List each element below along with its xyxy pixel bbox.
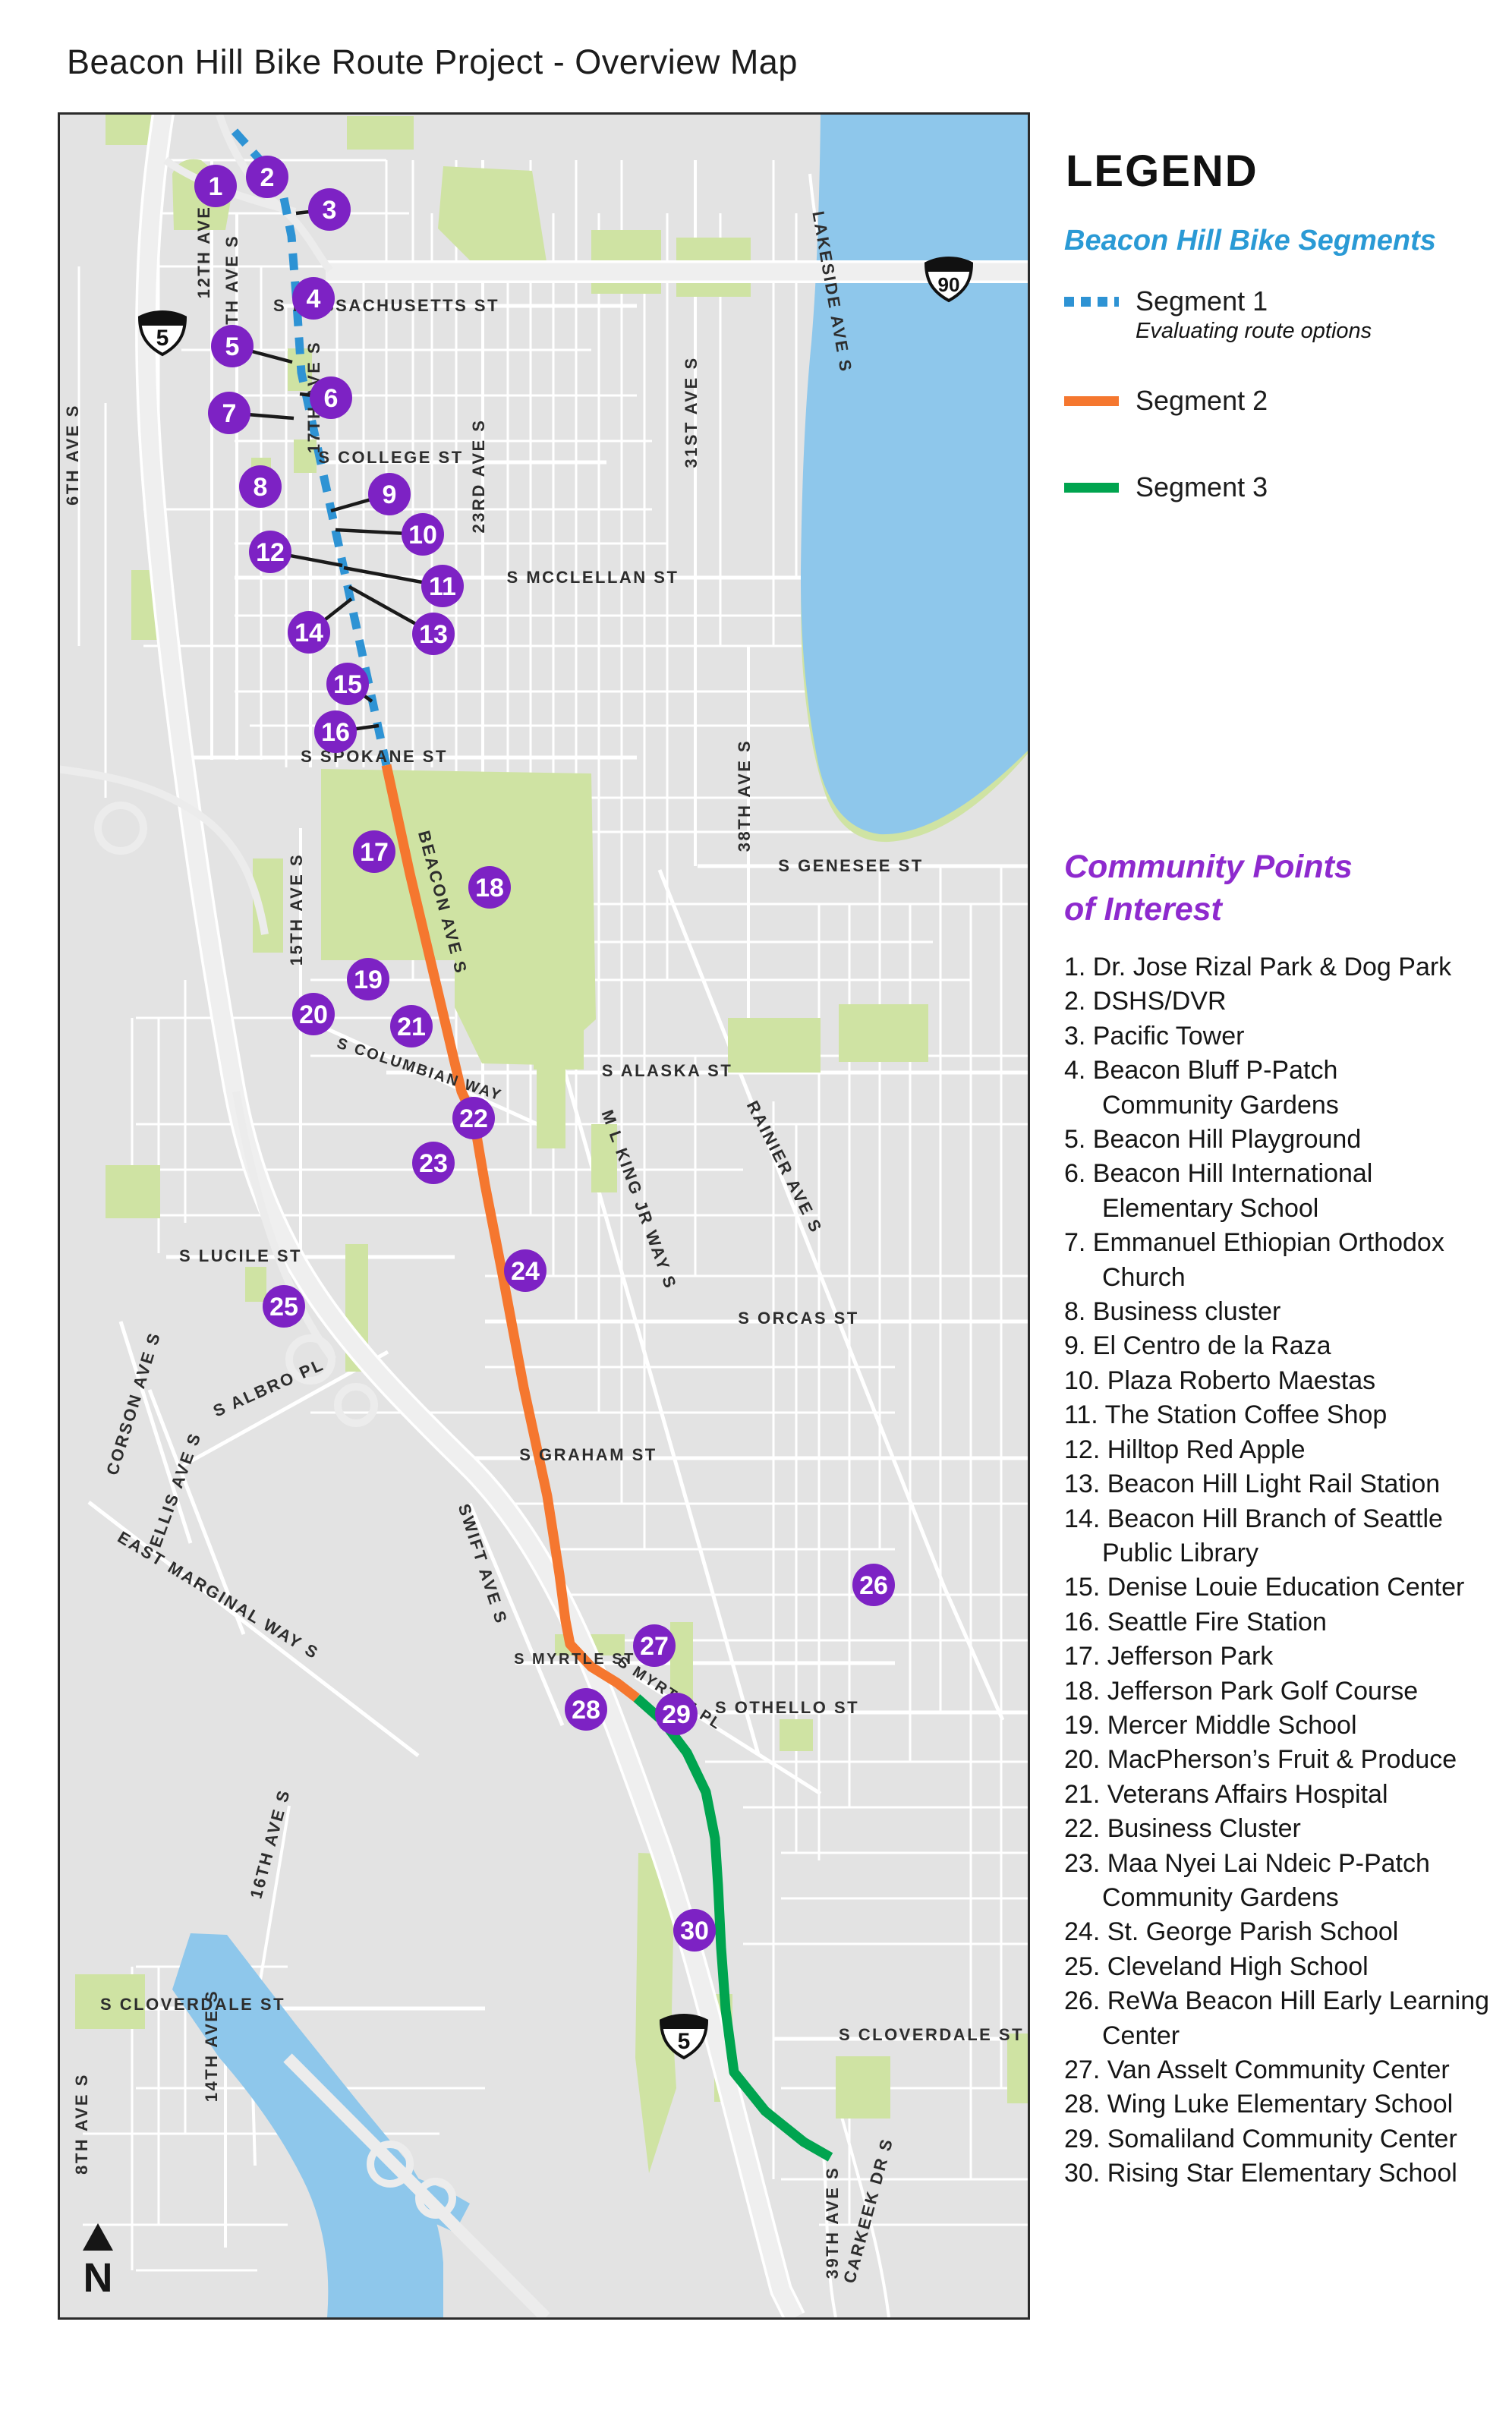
poi-heading-line2: of Interest xyxy=(1064,891,1222,928)
poi-marker-number: 22 xyxy=(459,1104,488,1133)
poi-item-9: 9. El Centro de la Raza xyxy=(1064,1329,1508,1363)
map-canvas: 5905 S MASSACHUSETTS STS COLLEGE STS MCC… xyxy=(60,115,1028,2317)
legend-row-segment-1: Segment 1 xyxy=(1064,284,1268,319)
poi-item-3: 3. Pacific Tower xyxy=(1064,1019,1508,1054)
poi-marker-number: 8 xyxy=(254,473,268,502)
poi-item-10: 10. Plaza Roberto Maestas xyxy=(1064,1364,1508,1398)
poi-marker-number: 21 xyxy=(397,1013,426,1041)
street-label: 15TH AVE S xyxy=(287,853,306,966)
shield-number: 90 xyxy=(938,273,960,296)
poi-marker-22: 22 xyxy=(452,1097,495,1139)
poi-marker-29: 29 xyxy=(655,1693,698,1735)
poi-marker-number: 7 xyxy=(222,399,237,428)
poi-marker-26: 26 xyxy=(852,1564,895,1606)
poi-marker-19: 19 xyxy=(347,958,389,1000)
poi-marker-8: 8 xyxy=(239,465,282,508)
poi-item-2: 2. DSHS/DVR xyxy=(1064,984,1508,1019)
poi-marker-number: 2 xyxy=(260,163,275,192)
street-label: 6TH AVE S xyxy=(63,404,82,506)
poi-item-25: 25. Cleveland High School xyxy=(1064,1950,1508,1984)
poi-item-24: 24. St. George Parish School xyxy=(1064,1915,1508,1949)
street-label: S CLOVERDALE ST xyxy=(100,1995,285,2014)
poi-marker-20: 20 xyxy=(292,993,335,1035)
shield-number: 5 xyxy=(678,2029,691,2054)
poi-marker-number: 29 xyxy=(662,1700,691,1729)
legend-panel: LEGEND Beacon Hill Bike Segments Segment… xyxy=(1058,0,1512,2432)
poi-marker-4: 4 xyxy=(292,277,335,320)
street-label: S GRAHAM ST xyxy=(519,1445,657,1464)
legend-row-segment-2: Segment 2 xyxy=(1064,383,1268,418)
overview-map: 5905 S MASSACHUSETTS STS COLLEGE STS MCC… xyxy=(58,112,1030,2320)
poi-item-15: 15. Denise Louie Education Center xyxy=(1064,1570,1508,1605)
legend-title: LEGEND xyxy=(1066,146,1258,197)
poi-marker-number: 4 xyxy=(307,285,321,313)
poi-marker-number: 25 xyxy=(269,1293,298,1322)
poi-item-23: 23. Maa Nyei Lai Ndeic P-Patch Community… xyxy=(1064,1847,1508,1916)
poi-marker-number: 30 xyxy=(680,1917,709,1945)
north-arrow-label: N xyxy=(83,2255,113,2301)
street-label: 39TH AVE S xyxy=(823,2166,842,2279)
segment-3-swatch xyxy=(1064,483,1119,493)
poi-marker-number: 19 xyxy=(354,966,383,994)
poi-item-12: 12. Hilltop Red Apple xyxy=(1064,1433,1508,1467)
poi-item-16: 16. Seattle Fire Station xyxy=(1064,1605,1508,1640)
segment-1-note: Evaluating route options xyxy=(1136,319,1372,344)
poi-marker-number: 11 xyxy=(429,572,456,601)
poi-list: 1. Dr. Jose Rizal Park & Dog Park2. DSHS… xyxy=(1064,950,1508,2191)
street-label: S CLOVERDALE ST xyxy=(839,2025,1024,2044)
poi-marker-23: 23 xyxy=(412,1142,455,1184)
poi-marker-number: 10 xyxy=(408,521,437,550)
poi-marker-25: 25 xyxy=(263,1285,305,1328)
poi-marker-28: 28 xyxy=(565,1688,607,1731)
street-label: 38TH AVE S xyxy=(735,739,754,852)
poi-item-11: 11. The Station Coffee Shop xyxy=(1064,1398,1508,1432)
street-label: S OTHELLO ST xyxy=(715,1698,859,1717)
poi-marker-27: 27 xyxy=(633,1624,676,1667)
poi-item-5: 5. Beacon Hill Playground xyxy=(1064,1123,1508,1157)
street-label: S COLLEGE ST xyxy=(318,448,463,467)
street-label: 8TH AVE S xyxy=(72,2073,91,2175)
street-label: 14TH AVE S xyxy=(202,1989,221,2102)
poi-marker-number: 12 xyxy=(256,538,285,567)
poi-marker-number: 17 xyxy=(360,838,389,867)
poi-item-28: 28. Wing Luke Elementary School xyxy=(1064,2087,1508,2122)
poi-marker-30: 30 xyxy=(673,1909,716,1952)
poi-marker-number: 28 xyxy=(572,1696,600,1725)
poi-item-17: 17. Jefferson Park xyxy=(1064,1640,1508,1674)
segment-2-label: Segment 2 xyxy=(1136,385,1268,417)
page-title: Beacon Hill Bike Route Project - Overvie… xyxy=(67,43,798,82)
poi-item-21: 21. Veterans Affairs Hospital xyxy=(1064,1778,1508,1812)
poi-marker-number: 15 xyxy=(333,670,362,699)
shield-number: 5 xyxy=(156,326,169,351)
poi-item-1: 1. Dr. Jose Rizal Park & Dog Park xyxy=(1064,950,1508,984)
segments-heading: Beacon Hill Bike Segments xyxy=(1064,225,1436,257)
poi-marker-number: 3 xyxy=(323,196,337,225)
poi-item-13: 13. Beacon Hill Light Rail Station xyxy=(1064,1467,1508,1501)
street-label: 31ST AVE S xyxy=(682,356,701,468)
poi-marker-17: 17 xyxy=(353,830,395,873)
poi-marker-1: 1 xyxy=(194,165,237,207)
poi-item-27: 27. Van Asselt Community Center xyxy=(1064,2053,1508,2087)
street-label: S GENESEE ST xyxy=(778,856,923,875)
poi-item-18: 18. Jefferson Park Golf Course xyxy=(1064,1674,1508,1709)
street-label: S MCCLELLAN ST xyxy=(507,568,679,587)
poi-marker-number: 24 xyxy=(511,1257,540,1286)
poi-marker-2: 2 xyxy=(246,156,288,198)
poi-marker-number: 14 xyxy=(295,619,323,647)
poi-marker-number: 18 xyxy=(475,874,504,903)
segment-1-label: Segment 1 xyxy=(1136,285,1268,317)
street-label: S ORCAS ST xyxy=(738,1309,858,1328)
poi-marker-number: 1 xyxy=(209,172,223,201)
poi-item-14: 14. Beacon Hill Branch of Seattle Public… xyxy=(1064,1502,1508,1571)
poi-item-26: 26. ReWa Beacon Hill Early Learning Cent… xyxy=(1064,1984,1508,2053)
poi-marker-21: 21 xyxy=(390,1005,433,1047)
poi-item-29: 29. Somaliland Community Center xyxy=(1064,2122,1508,2156)
poi-marker-number: 13 xyxy=(419,620,448,649)
legend-row-segment-3: Segment 3 xyxy=(1064,470,1268,505)
lake-washington xyxy=(801,115,1028,834)
poi-marker-24: 24 xyxy=(504,1249,547,1292)
poi-item-19: 19. Mercer Middle School xyxy=(1064,1709,1508,1743)
poi-item-22: 22. Business Cluster xyxy=(1064,1812,1508,1846)
poi-item-6: 6. Beacon Hill International Elementary … xyxy=(1064,1157,1508,1226)
poi-marker-number: 6 xyxy=(324,384,339,413)
street-label: S ALASKA ST xyxy=(602,1061,733,1080)
segment-1-swatch xyxy=(1064,297,1119,307)
poi-item-20: 20. MacPherson’s Fruit & Produce xyxy=(1064,1743,1508,1777)
poi-marker-18: 18 xyxy=(468,866,511,909)
segment-3-label: Segment 3 xyxy=(1136,471,1268,503)
poi-item-30: 30. Rising Star Elementary School xyxy=(1064,2156,1508,2191)
poi-marker-number: 23 xyxy=(419,1149,448,1178)
segment-2-swatch xyxy=(1064,396,1119,406)
poi-item-8: 8. Business cluster xyxy=(1064,1295,1508,1329)
page: { "title": "Beacon Hill Bike Route Proje… xyxy=(0,0,1512,2432)
poi-marker-number: 27 xyxy=(640,1632,669,1661)
poi-heading-line1: Community Points xyxy=(1064,849,1353,886)
poi-item-7: 7. Emmanuel Ethiopian Orthodox Church xyxy=(1064,1226,1508,1295)
poi-marker-number: 5 xyxy=(225,332,240,361)
poi-marker-number: 9 xyxy=(383,480,397,509)
poi-marker-number: 26 xyxy=(859,1571,888,1600)
poi-marker-number: 20 xyxy=(299,1000,328,1029)
poi-item-4: 4. Beacon Bluff P-Patch Community Garden… xyxy=(1064,1054,1508,1123)
street-label: S LUCILE ST xyxy=(179,1246,302,1265)
poi-marker-number: 16 xyxy=(321,718,350,747)
street-label: 23RD AVE S xyxy=(469,419,488,534)
street-label: S SPOKANE ST xyxy=(301,747,448,766)
